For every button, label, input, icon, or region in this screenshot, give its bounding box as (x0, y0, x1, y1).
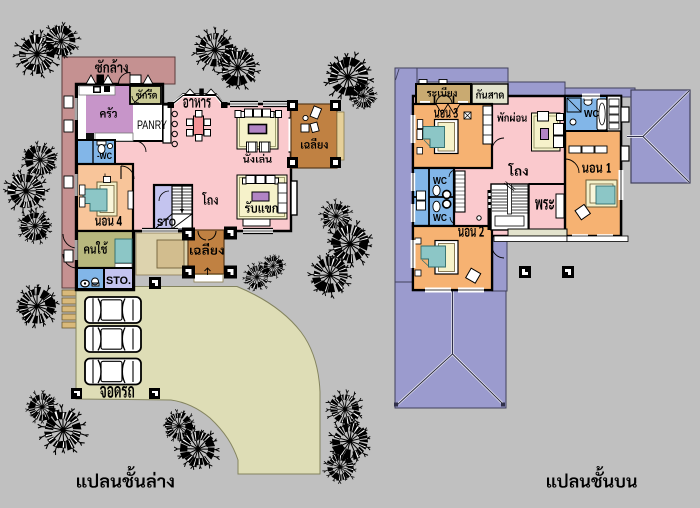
svg-text:STO: STO (157, 217, 176, 229)
svg-text:WC: WC (584, 108, 599, 120)
svg-text:WC: WC (433, 213, 447, 224)
svg-text:STO.: STO. (106, 275, 131, 287)
svg-text:WC: WC (433, 176, 447, 187)
svg-text:PANRY: PANRY (137, 120, 167, 132)
svg-text:-WC: -WC (97, 151, 112, 162)
